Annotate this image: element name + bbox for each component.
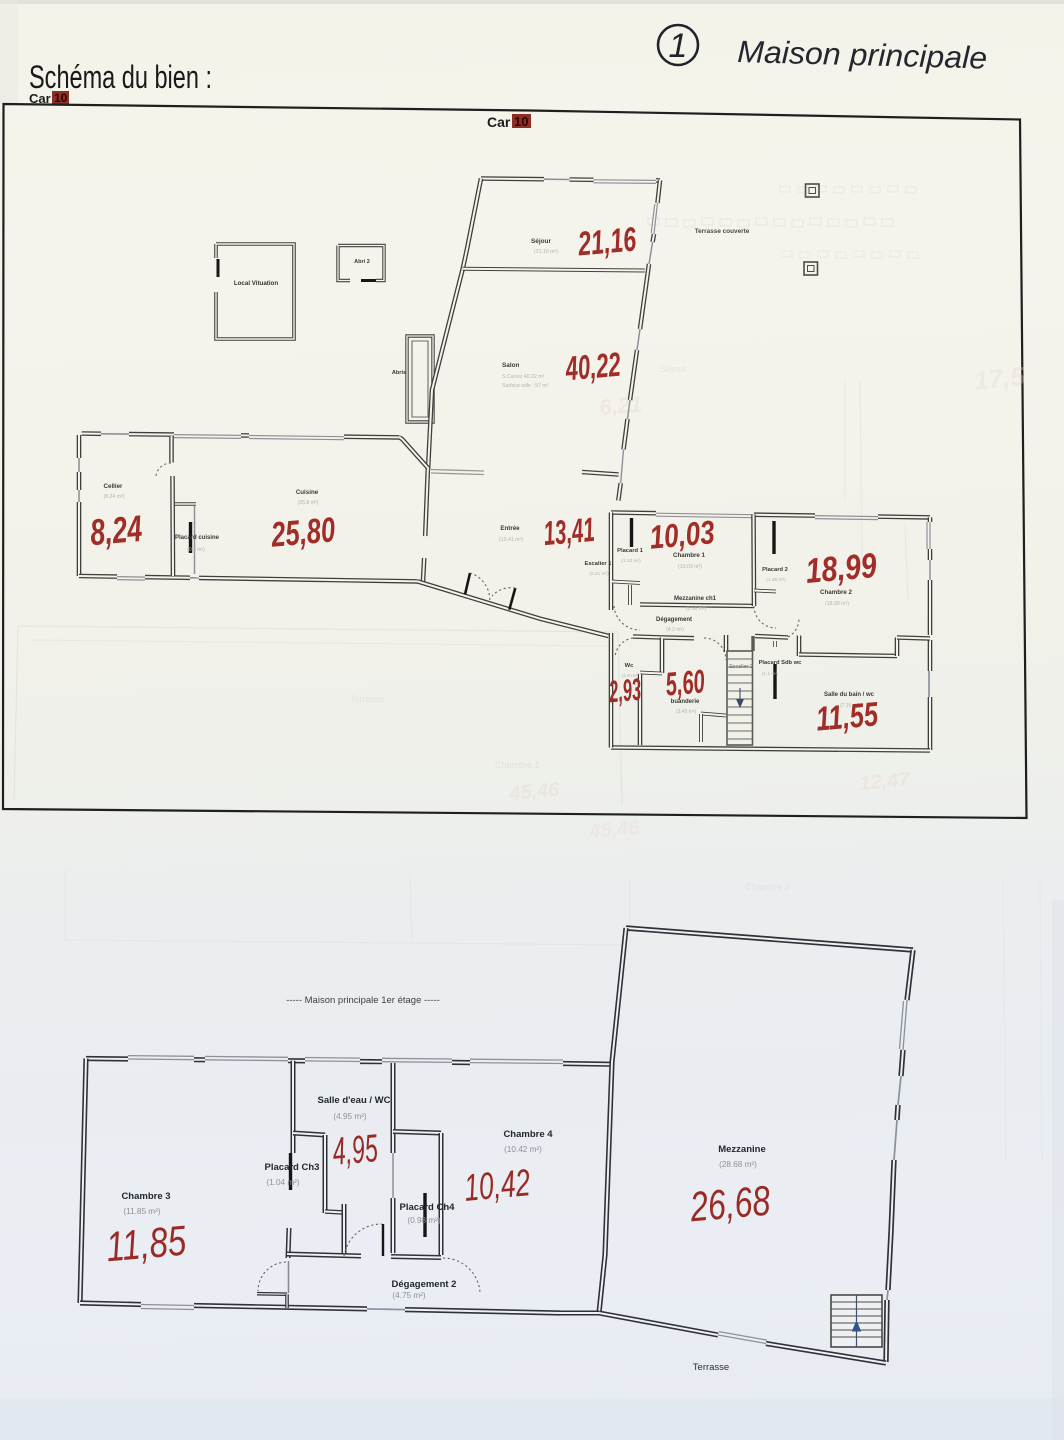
svg-text:8,24: 8,24 — [88, 508, 143, 553]
svg-text:Schéma du bien :: Schéma du bien : — [29, 59, 212, 95]
svg-text:10: 10 — [54, 91, 68, 105]
svg-text:Cellier: Cellier — [104, 483, 124, 490]
svg-text:Salon: Salon — [502, 362, 519, 369]
svg-text:(1.04 m²): (1.04 m²) — [266, 1178, 299, 1187]
svg-text:Chambre 4: Chambre 4 — [503, 1129, 553, 1140]
svg-text:Wc: Wc — [625, 663, 634, 669]
svg-text:(1.1 m²): (1.1 m²) — [762, 671, 779, 677]
svg-text:Séjour: Séjour — [531, 238, 551, 245]
svg-text:----- Maison principale 1er é: ----- Maison principale 1er étage ----- — [286, 995, 440, 1006]
svg-text:(0.5 m²): (0.5 m²) — [187, 547, 205, 553]
svg-text:Car: Car — [487, 114, 511, 130]
svg-text:Abri 2: Abri 2 — [354, 259, 370, 265]
svg-text:(0.98 m²): (0.98 m²) — [407, 1216, 440, 1225]
svg-text:Placard 2: Placard 2 — [762, 567, 788, 573]
svg-text:18,99: 18,99 — [804, 546, 879, 591]
svg-text:Terrasse: Terrasse — [350, 694, 385, 704]
svg-text:(4.95 m²): (4.95 m²) — [333, 1112, 366, 1121]
svg-text:Abris: Abris — [392, 370, 406, 376]
svg-text:Surface utile : 57 m²: Surface utile : 57 m² — [502, 383, 549, 389]
svg-text:(28.68 m²): (28.68 m²) — [719, 1160, 757, 1169]
svg-text:4,95: 4,95 — [331, 1127, 380, 1174]
svg-text:1: 1 — [669, 27, 688, 65]
svg-text:(5.21 m²): (5.21 m²) — [589, 571, 609, 577]
svg-text:(4.2 m²): (4.2 m²) — [666, 627, 684, 633]
svg-text:(5.56 m²): (5.56 m²) — [686, 606, 707, 612]
svg-text:(1.38 m²): (1.38 m²) — [766, 577, 786, 583]
svg-text:5,60: 5,60 — [664, 662, 706, 702]
svg-text:2,93: 2,93 — [607, 672, 642, 710]
svg-text:buanderie: buanderie — [671, 699, 700, 705]
svg-text:(3.49 m²): (3.49 m²) — [676, 709, 697, 715]
svg-text:Dégagement: Dégagement — [656, 617, 692, 623]
svg-text:(10.42 m²): (10.42 m²) — [504, 1145, 542, 1154]
svg-text:Mezzanine: Mezzanine — [718, 1144, 766, 1155]
svg-text:S Carrez 40.22 m²: S Carrez 40.22 m² — [502, 374, 545, 380]
svg-text:45,46: 45,46 — [588, 817, 642, 843]
svg-text:(4.75 m²): (4.75 m²) — [392, 1291, 425, 1300]
svg-text:Maison principale: Maison principale — [737, 34, 988, 76]
svg-text:Escalier 2: Escalier 2 — [729, 664, 753, 670]
svg-text:Cuisine: Cuisine — [296, 489, 319, 496]
svg-text:(8.24 m²): (8.24 m²) — [103, 494, 124, 500]
svg-text:Terrasse couverte: Terrasse couverte — [695, 228, 750, 235]
svg-text:Mezzanine ch1: Mezzanine ch1 — [674, 596, 717, 602]
svg-text:Placard cuisine: Placard cuisine — [175, 535, 220, 541]
svg-text:Placard Sdb wc: Placard Sdb wc — [759, 660, 803, 666]
svg-text:40,22: 40,22 — [563, 346, 622, 389]
svg-text:(13.41 m²): (13.41 m²) — [499, 537, 523, 543]
svg-text:(21.16 m²): (21.16 m²) — [534, 249, 558, 255]
svg-text:Entrée: Entrée — [500, 525, 520, 532]
svg-text:11,55: 11,55 — [815, 695, 881, 738]
svg-text:(18.99 m²): (18.99 m²) — [825, 601, 849, 607]
svg-text:45,46: 45,46 — [508, 779, 562, 805]
svg-text:Chambre 2: Chambre 2 — [820, 589, 853, 596]
svg-text:6,21: 6,21 — [598, 391, 643, 420]
svg-text:17,5: 17,5 — [972, 361, 1026, 396]
svg-text:Local Vituation: Local Vituation — [234, 280, 278, 287]
svg-text:10: 10 — [514, 114, 528, 129]
svg-text:(10.03 m²): (10.03 m²) — [678, 564, 702, 570]
svg-text:Chambre 1: Chambre 1 — [495, 760, 540, 770]
svg-text:25,80: 25,80 — [269, 510, 337, 555]
svg-text:10,03: 10,03 — [648, 513, 716, 556]
svg-text:Placard Ch4: Placard Ch4 — [400, 1202, 456, 1213]
svg-text:26,68: 26,68 — [687, 1177, 772, 1231]
svg-text:13,41: 13,41 — [542, 511, 596, 553]
svg-text:(1.10 m²): (1.10 m²) — [621, 558, 641, 564]
svg-text:Chambre 2: Chambre 2 — [745, 882, 790, 892]
svg-text:Salle d'eau / WC: Salle d'eau / WC — [318, 1095, 391, 1106]
svg-text:Placard Ch3: Placard Ch3 — [265, 1162, 320, 1173]
svg-text:(25.8 m²): (25.8 m²) — [297, 500, 318, 506]
svg-text:Escalier 1: Escalier 1 — [584, 561, 612, 567]
svg-text:Dégagement 2: Dégagement 2 — [392, 1279, 457, 1290]
svg-text:12,47: 12,47 — [859, 769, 912, 795]
svg-text:11,85: 11,85 — [104, 1217, 188, 1271]
svg-text:(11.85 m²): (11.85 m²) — [123, 1207, 160, 1216]
svg-text:Placard 1: Placard 1 — [617, 548, 644, 554]
svg-text:21,16: 21,16 — [576, 220, 639, 263]
svg-text:Terrasse: Terrasse — [693, 1362, 729, 1373]
svg-text:Séjour: Séjour — [660, 364, 686, 374]
svg-text:10,42: 10,42 — [462, 1162, 531, 1210]
svg-text:Chambre 3: Chambre 3 — [121, 1191, 170, 1202]
